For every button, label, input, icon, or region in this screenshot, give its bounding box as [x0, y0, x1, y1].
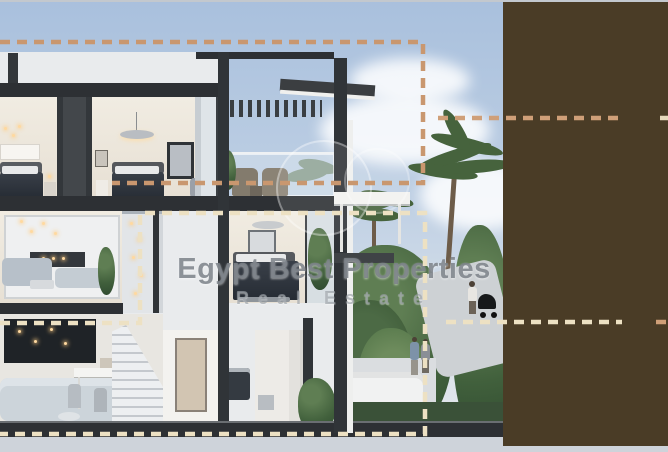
upper-unit-outline — [0, 42, 423, 183]
annotation-overlay — [0, 0, 668, 452]
real-estate-listing-image: Egypt Best Properties Real Estate — [0, 0, 668, 452]
lower-unit-outline — [0, 213, 425, 434]
